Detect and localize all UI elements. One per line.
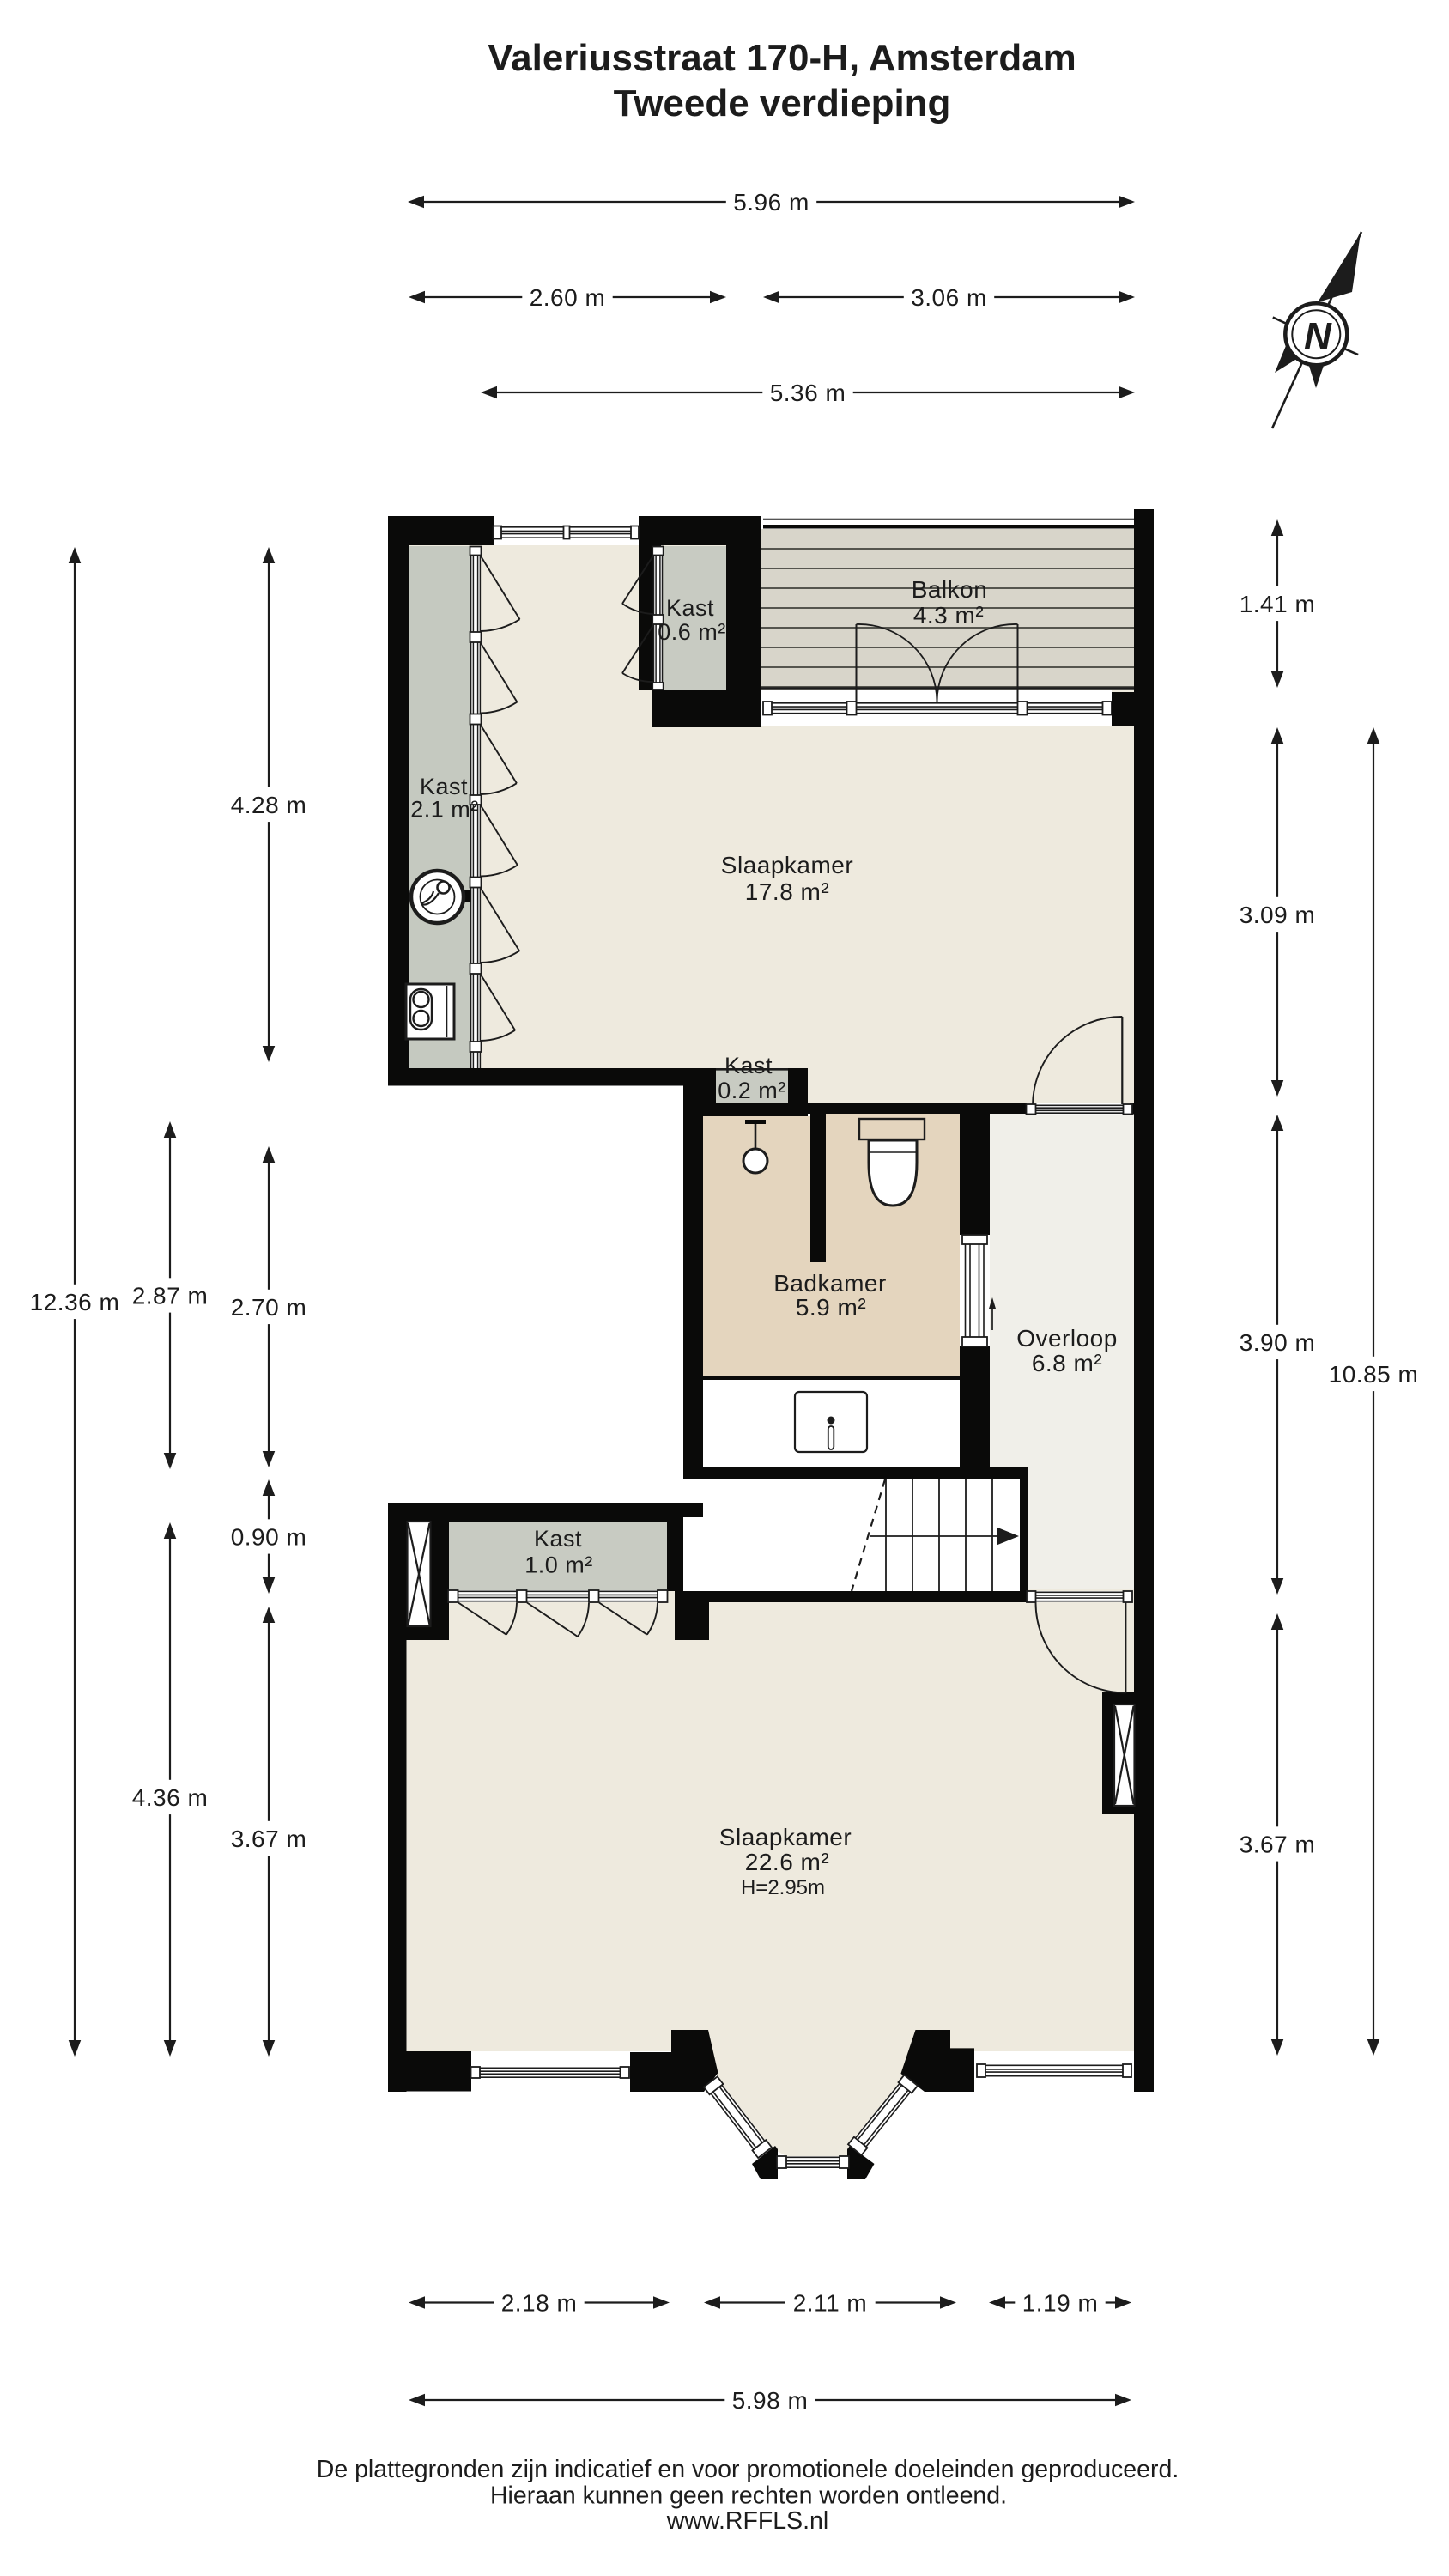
svg-text:Balkon: Balkon bbox=[912, 576, 988, 603]
svg-text:2.1 m²: 2.1 m² bbox=[410, 797, 479, 823]
svg-text:Valeriusstraat 170-H, Amsterda: Valeriusstraat 170-H, Amsterdam bbox=[488, 37, 1076, 79]
svg-text:3.90 m: 3.90 m bbox=[1240, 1329, 1316, 1356]
svg-text:2.11 m: 2.11 m bbox=[793, 2290, 868, 2317]
svg-text:4.36 m: 4.36 m bbox=[132, 1784, 209, 1811]
svg-text:5.96 m: 5.96 m bbox=[733, 189, 809, 216]
svg-text:2.87 m: 2.87 m bbox=[132, 1283, 209, 1309]
svg-text:17.8 m²: 17.8 m² bbox=[745, 878, 829, 905]
svg-text:5.98 m: 5.98 m bbox=[732, 2387, 809, 2414]
svg-text:4.3 m²: 4.3 m² bbox=[913, 602, 984, 629]
svg-text:Kast: Kast bbox=[420, 774, 468, 799]
svg-text:5.9 m²: 5.9 m² bbox=[796, 1294, 866, 1321]
svg-text:4.28 m: 4.28 m bbox=[231, 792, 307, 818]
svg-text:Slaapkamer: Slaapkamer bbox=[721, 852, 853, 878]
svg-text:1.0 m²: 1.0 m² bbox=[524, 1552, 593, 1578]
svg-text:Kast: Kast bbox=[534, 1526, 582, 1552]
svg-text:5.36 m: 5.36 m bbox=[770, 380, 846, 406]
svg-text:Kast: Kast bbox=[724, 1053, 773, 1078]
svg-text:2.18 m: 2.18 m bbox=[501, 2290, 578, 2317]
svg-text:10.85 m: 10.85 m bbox=[1329, 1361, 1419, 1388]
svg-text:3.67 m: 3.67 m bbox=[231, 1826, 307, 1852]
svg-text:1.19 m: 1.19 m bbox=[1022, 2290, 1099, 2317]
svg-text:12.36 m: 12.36 m bbox=[30, 1289, 120, 1315]
svg-text:Badkamer: Badkamer bbox=[773, 1270, 887, 1297]
svg-text:Tweede verdieping: Tweede verdieping bbox=[614, 82, 951, 125]
svg-text:0.6 m²: 0.6 m² bbox=[658, 619, 726, 645]
svg-text:De plattegronden zijn indicati: De plattegronden zijn indicatief en voor… bbox=[317, 2456, 1179, 2483]
svg-text:3.09 m: 3.09 m bbox=[1240, 902, 1316, 928]
svg-text:Overloop: Overloop bbox=[1016, 1325, 1118, 1352]
svg-text:H=2.95m: H=2.95m bbox=[741, 1876, 825, 1899]
svg-text:3.67 m: 3.67 m bbox=[1240, 1832, 1316, 1858]
svg-text:3.06 m: 3.06 m bbox=[911, 284, 987, 311]
svg-text:6.8 m²: 6.8 m² bbox=[1032, 1350, 1102, 1376]
svg-text:22.6 m²: 22.6 m² bbox=[745, 1849, 829, 1875]
svg-text:0.90 m: 0.90 m bbox=[231, 1524, 307, 1551]
svg-text:Kast: Kast bbox=[666, 595, 714, 621]
svg-text:www.RFFLS.nl: www.RFFLS.nl bbox=[666, 2507, 828, 2535]
svg-text:Hieraan kunnen geen rechten wo: Hieraan kunnen geen rechten worden ontle… bbox=[490, 2482, 1007, 2510]
svg-text:2.60 m: 2.60 m bbox=[530, 284, 606, 311]
svg-text:2.70 m: 2.70 m bbox=[231, 1294, 307, 1321]
svg-text:N: N bbox=[1304, 315, 1332, 357]
svg-text:0.2 m²: 0.2 m² bbox=[718, 1078, 786, 1103]
svg-text:Slaapkamer: Slaapkamer bbox=[719, 1824, 852, 1850]
svg-text:1.41 m: 1.41 m bbox=[1240, 591, 1316, 617]
